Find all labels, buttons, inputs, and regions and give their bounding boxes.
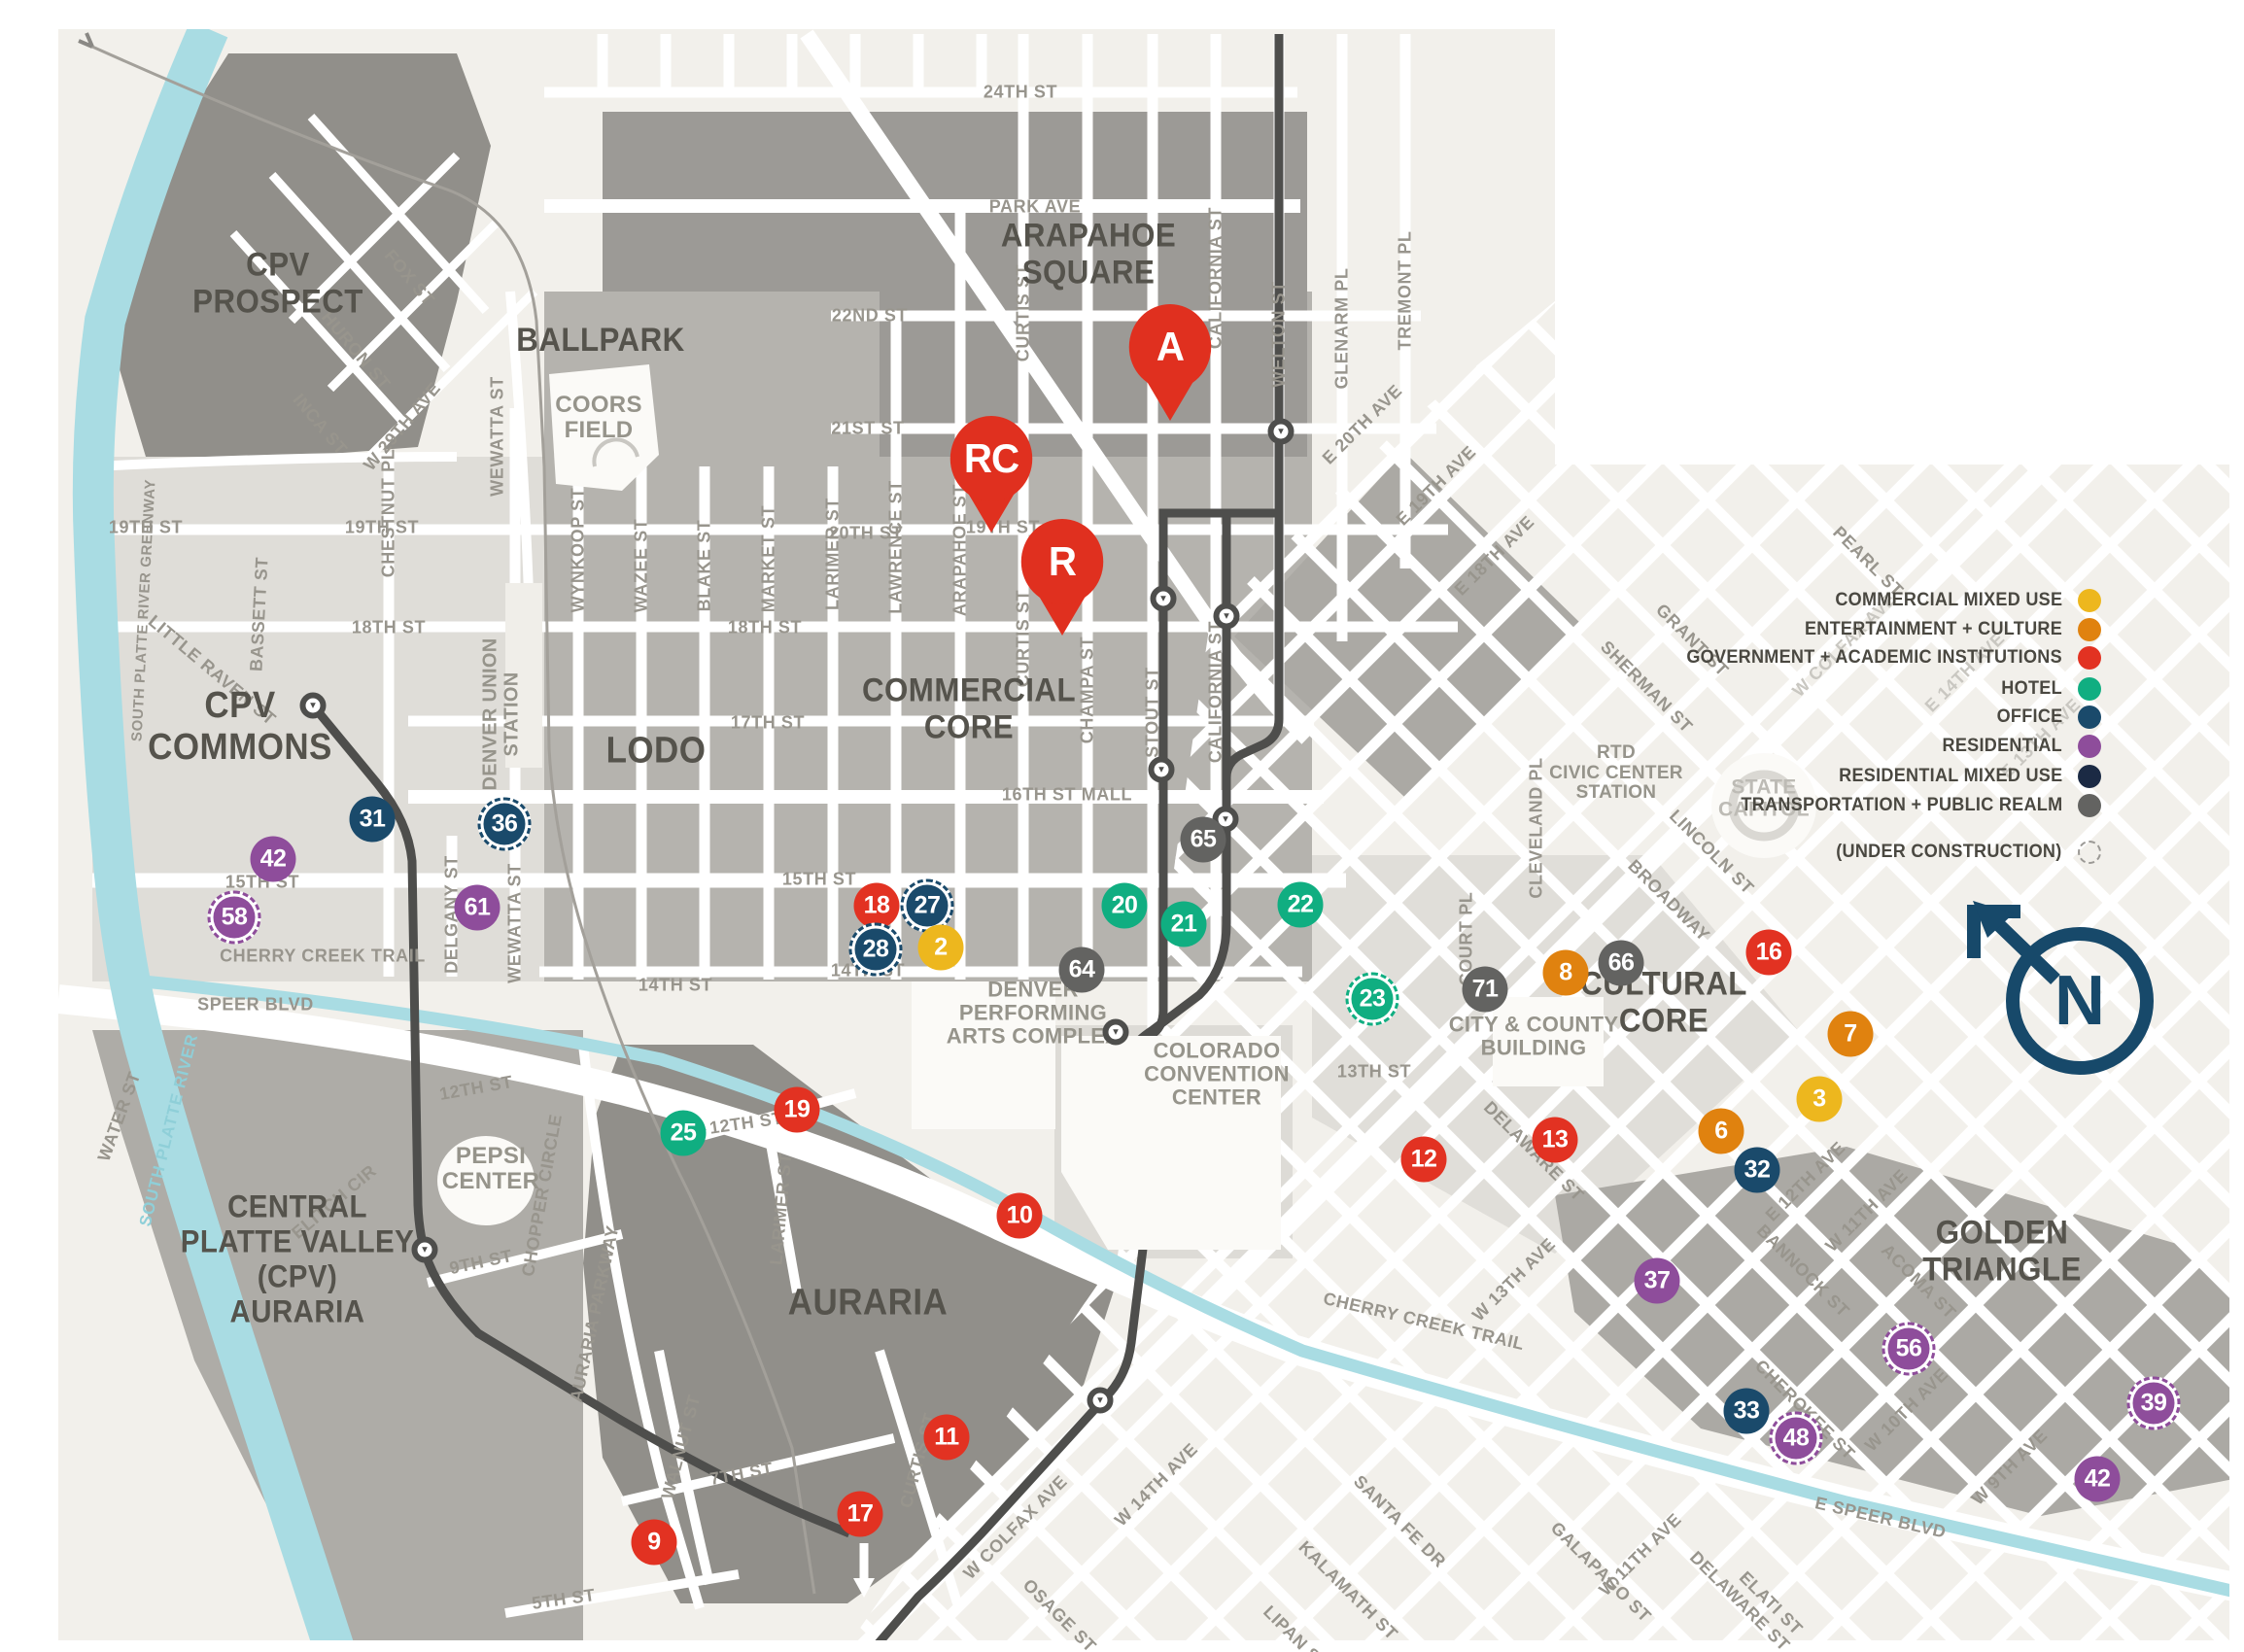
legend-item-label: RESIDENTIAL MIXED USE	[1839, 766, 2062, 787]
street-label: MARKET ST	[759, 505, 779, 612]
transit-stop[interactable]: ▾	[1103, 1019, 1129, 1046]
building-label: COLORADOCONVENTIONCENTER	[1144, 1039, 1290, 1108]
map-marker-56[interactable]: 56	[1882, 1323, 1936, 1376]
street-label: SPEER BLVD	[197, 995, 314, 1015]
street-label: W COLFAX AVE	[959, 1471, 1071, 1583]
map-marker-48[interactable]: 48	[1770, 1412, 1823, 1465]
street-label: KALAMATH ST	[1295, 1537, 1401, 1644]
legend-item-label: ENTERTAINMENT + CULTURE	[1805, 619, 2062, 640]
street-label: STOUT ST	[1143, 667, 1163, 757]
map-marker-9[interactable]: 9	[632, 1520, 677, 1566]
street-label: TREMONT PL	[1396, 231, 1416, 351]
map-marker-28[interactable]: 28	[849, 923, 903, 977]
legend-under-construction-dot	[2078, 841, 2101, 864]
street-label: WAZEE ST	[632, 519, 652, 613]
district-label: GOLDENTRIANGLE	[1922, 1215, 2082, 1290]
street-label: 12TH ST	[438, 1072, 515, 1105]
street-label: FOX ST	[380, 246, 438, 310]
pin-label: RC	[950, 416, 1032, 501]
legend-item-tp: TRANSPORTATION + PUBLIC REALM	[1724, 791, 2101, 820]
legend-color-dot	[2078, 618, 2101, 641]
street-label: W 13TH AVE	[1468, 1234, 1560, 1325]
marker-circle: 27	[907, 885, 949, 927]
transit-stop[interactable]: ▾	[1087, 1388, 1114, 1414]
district-label: ARAPAHOESQUARE	[1001, 218, 1176, 293]
street-label: CHOPPER CIRCLE	[518, 1113, 567, 1278]
building-label: RTDCIVIC CENTERSTATION	[1549, 743, 1683, 804]
street-label: 18TH ST	[352, 618, 426, 638]
street-label: INCA ST	[289, 390, 352, 459]
street-label: WEWATTA ST	[488, 376, 508, 497]
street-label: 12TH ST	[708, 1108, 784, 1138]
legend-item-label: HOTEL	[2001, 678, 2062, 700]
map-marker-16[interactable]: 16	[1746, 930, 1792, 976]
transit-stop[interactable]: ▾	[1268, 419, 1295, 445]
street-label: W 10TH AVE	[1861, 1364, 1952, 1456]
map-marker-12[interactable]: 12	[1401, 1137, 1447, 1183]
street-label: AURARIA PARKWAY	[566, 1223, 623, 1404]
street-label: E SPEER BLVD	[1812, 1493, 1948, 1542]
street-label: 7TH ST	[708, 1459, 775, 1490]
building-label: CITY & COUNTYBUILDING	[1449, 1013, 1619, 1059]
legend-item-label: TRANSPORTATION + PUBLIC REALM	[1741, 795, 2062, 816]
transit-stop[interactable]: ▾	[1214, 603, 1240, 630]
legend-color-dot	[2078, 794, 2101, 817]
legend-item-ho: HOTEL	[1998, 674, 2101, 704]
district-label: COMMERCIALCORE	[862, 672, 1076, 747]
pin-label: A	[1129, 304, 1211, 390]
street-label: 24TH ST	[984, 83, 1057, 103]
location-pin-A[interactable]: A	[1127, 304, 1213, 390]
map-marker-65[interactable]: 65	[1181, 817, 1226, 863]
street-label: 14TH ST	[639, 976, 712, 996]
street-label: 17TH ST	[731, 713, 805, 734]
legend-item-re: RESIDENTIAL	[1936, 732, 2101, 761]
marker-circle: 48	[1776, 1418, 1817, 1460]
map-marker-17[interactable]: 17	[838, 1492, 883, 1537]
legend-under-construction-label: (UNDER CONSTRUCTION)	[1837, 842, 2062, 863]
map-marker-36[interactable]: 36	[478, 798, 532, 851]
map-marker-31[interactable]: 31	[350, 797, 396, 843]
street-label: W 9TH AVE	[1968, 1426, 2053, 1510]
street-label: 13TH ST	[1337, 1062, 1411, 1083]
street-label: BASSETT ST	[246, 557, 272, 672]
legend-item-of: OFFICE	[1993, 703, 2101, 732]
map-marker-42[interactable]: 42	[2075, 1457, 2121, 1502]
map-marker-19[interactable]: 19	[775, 1087, 820, 1133]
map-marker-3[interactable]: 3	[1797, 1077, 1843, 1122]
street-label: CHESTNUT PL	[379, 449, 399, 578]
street-label: LARIMER ST	[766, 1152, 796, 1265]
street-label: LAWRENCE ST	[886, 480, 907, 614]
street-label: E 20TH AVE	[1319, 381, 1407, 469]
location-pin-RC[interactable]: RC	[949, 416, 1034, 501]
street-label: GALAPAGO ST	[1546, 1518, 1655, 1627]
street-label: W 11TH AVE	[1821, 1165, 1912, 1256]
pin-label: R	[1021, 519, 1103, 604]
map-marker-25[interactable]: 25	[661, 1111, 707, 1156]
street-label: CALIFORNIA ST	[1206, 621, 1226, 763]
building-label: COORSFIELD	[555, 393, 642, 443]
street-label: 21ST ST	[831, 419, 904, 439]
legend-item-under-construction: (UNDER CONSTRUCTION)	[1824, 838, 2101, 867]
street-label: E 18TH AVE	[1451, 512, 1539, 601]
street-label: 16TH ST MALL	[1002, 785, 1132, 806]
street-label: 15TH ST	[782, 870, 856, 890]
legend-color-dot	[2078, 706, 2101, 729]
legend-color-dot	[2078, 589, 2101, 612]
map-marker-58[interactable]: 58	[208, 891, 261, 945]
street-label: E 19TH AVE	[1393, 442, 1481, 531]
street-label: W 29TH AVE	[360, 378, 445, 474]
district-label: LODO	[606, 731, 707, 773]
legend-item-cm: COMMERCIAL MIXED USE	[1823, 586, 2101, 615]
marker-circle: 36	[484, 804, 526, 845]
district-label: AURARIA	[788, 1283, 948, 1325]
marker-circle: 39	[2133, 1383, 2175, 1425]
street-label: GLENARM PL	[1332, 268, 1353, 390]
legend-item-label: RESIDENTIAL	[1943, 736, 2062, 757]
street-label: CLEVELAND PL	[1527, 757, 1547, 898]
transit-stop[interactable]: ▾	[1151, 586, 1177, 612]
map-marker-39[interactable]: 39	[2127, 1377, 2181, 1430]
transit-stop[interactable]: ▾	[300, 693, 327, 719]
map-marker-21[interactable]: 21	[1161, 902, 1207, 947]
legend-item-ga: GOVERNMENT + ACADEMIC INSTITUTIONS	[1667, 643, 2101, 672]
marker-circle: 28	[855, 929, 897, 971]
legend-color-dot	[2078, 646, 2101, 670]
compass-arrow-icon	[1944, 865, 2099, 1020]
building-label: PEPSICENTER	[442, 1144, 539, 1194]
street-label: 18TH ST	[728, 618, 802, 638]
street-label: LARIMER ST	[823, 498, 844, 610]
legend-color-dot	[2078, 735, 2101, 758]
legend-item-ec: ENTERTAINMENT + CULTURE	[1791, 615, 2101, 644]
map-marker-64[interactable]: 64	[1059, 947, 1105, 993]
map-marker-61[interactable]: 61	[455, 885, 501, 931]
street-label: WALNUT ST	[658, 1393, 706, 1501]
legend-item-rm: RESIDENTIAL MIXED USE	[1827, 762, 2101, 791]
street-label: W 14TH AVE	[1111, 1439, 1202, 1531]
marker-circle: 56	[1888, 1328, 1930, 1370]
map-marker-37[interactable]: 37	[1635, 1258, 1680, 1304]
street-label: LIPAN ST	[1259, 1601, 1331, 1652]
map-marker-20[interactable]: 20	[1102, 883, 1148, 929]
map-marker-8[interactable]: 8	[1543, 950, 1589, 996]
legend-item-label: COMMERCIAL MIXED USE	[1835, 590, 2062, 611]
map-marker-33[interactable]: 33	[1724, 1389, 1770, 1434]
map-marker-71[interactable]: 71	[1463, 967, 1508, 1013]
map-marker-23[interactable]: 23	[1346, 973, 1399, 1026]
street-label: BLAKE ST	[695, 520, 715, 612]
transit-stop[interactable]: ▾	[412, 1237, 438, 1263]
location-pin-R[interactable]: R	[1019, 519, 1105, 604]
map-marker-18[interactable]: 18	[854, 883, 900, 929]
street-label: WYNKOOP ST	[569, 488, 589, 613]
denver-districts-map: 24TH STPARK AVE22ND ST21ST ST20TH ST19TH…	[0, 0, 2244, 1652]
street-label: CHERRY CREEK TRAIL	[220, 946, 426, 967]
street-label: PARK AVE	[989, 197, 1081, 218]
street-label: OSAGE ST	[1018, 1575, 1100, 1652]
map-marker-11[interactable]: 11	[924, 1415, 970, 1461]
map-marker-22[interactable]: 22	[1278, 882, 1324, 928]
marker-circle: 23	[1352, 979, 1394, 1020]
legend-item-label: OFFICE	[1996, 706, 2062, 728]
marker-circle: 58	[214, 897, 256, 939]
district-label: CENTRALPLATTE VALLEY(CPV)AURARIA	[181, 1189, 414, 1330]
street-label: WEWATTA ST	[505, 863, 526, 983]
map-marker-6[interactable]: 6	[1699, 1109, 1744, 1154]
map-marker-7[interactable]: 7	[1828, 1012, 1874, 1057]
building-label: DENVER UNIONSTATION	[480, 638, 522, 791]
legend-color-dot	[2078, 677, 2101, 701]
map-marker-2[interactable]: 2	[918, 925, 964, 971]
street-label: CHAMPA ST	[1078, 637, 1098, 743]
transit-stop[interactable]: ▾	[1149, 757, 1175, 783]
map-marker-10[interactable]: 10	[997, 1193, 1043, 1239]
street-label: WELTON ST	[1269, 281, 1290, 388]
legend-item-label: GOVERNMENT + ACADEMIC INSTITUTIONS	[1686, 647, 2062, 669]
map-marker-13[interactable]: 13	[1533, 1118, 1578, 1163]
map-marker-66[interactable]: 66	[1599, 941, 1644, 986]
street-label: 5TH ST	[531, 1585, 597, 1614]
map-marker-32[interactable]: 32	[1735, 1148, 1780, 1193]
street-label: SANTA FE DR	[1349, 1471, 1450, 1572]
street-label: 22ND ST	[832, 306, 908, 327]
map-marker-42[interactable]: 42	[251, 837, 296, 882]
legend-color-dot	[2078, 765, 2101, 788]
district-label: BALLPARK	[516, 322, 684, 359]
district-label: CPVPROSPECT	[192, 247, 363, 322]
street-label: 9TH ST	[448, 1246, 515, 1279]
street-label: BROADWAY	[1624, 856, 1714, 946]
street-label: WATER ST	[94, 1069, 146, 1164]
